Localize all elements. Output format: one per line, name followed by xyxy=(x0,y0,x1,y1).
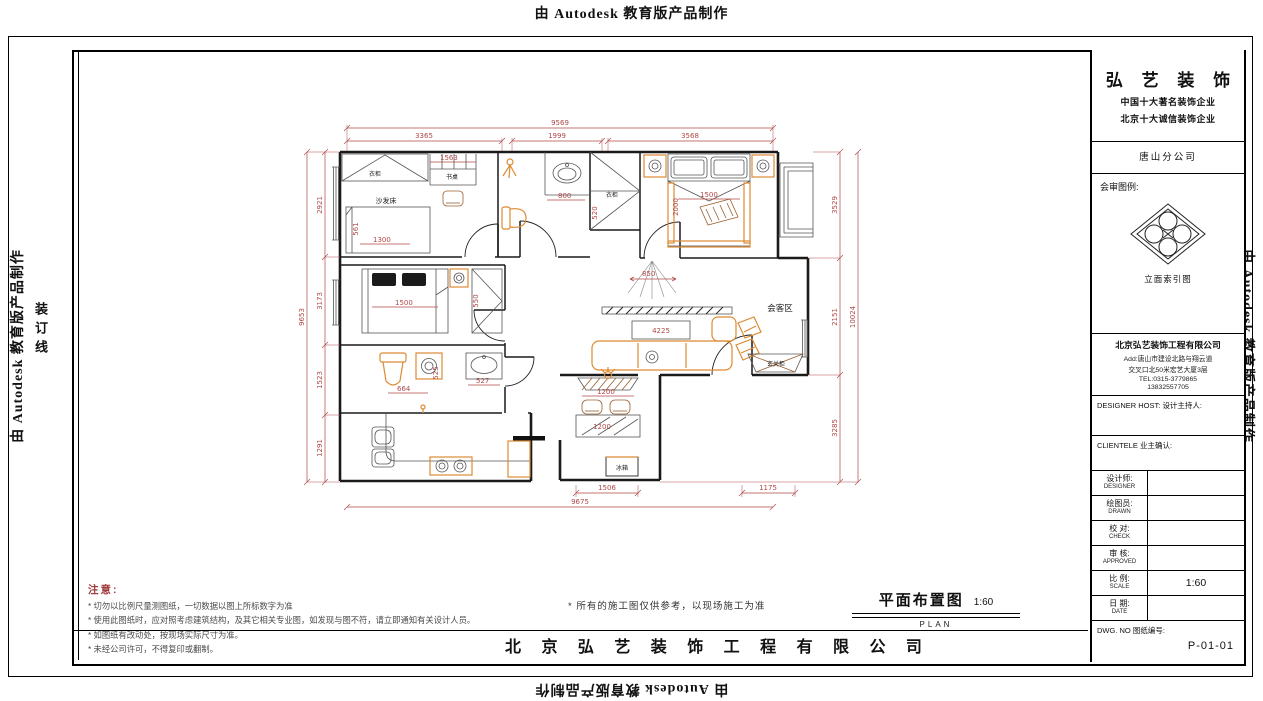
designer-host-cn: 设计主持人: xyxy=(1162,401,1202,410)
note-item: * 使用此图纸时，应对照考虑建筑结构，及其它相关专业图，如发现与图不符，请立即通… xyxy=(88,614,563,626)
row-label-cn: 绘图员: xyxy=(1092,498,1147,509)
company-name-footer: 北 京 弘 艺 装 饰 工 程 有 限 公 司 xyxy=(505,633,930,657)
company-address-1: Add:唐山市建设北路与翔云道 xyxy=(1092,353,1244,363)
cabinet-dim: 1200 xyxy=(597,388,615,396)
note-item: * 未经公司许可，不得复印或翻制。 xyxy=(88,643,563,655)
toilet1-icon xyxy=(502,207,526,229)
company-address-2: 交叉口北50米宏艺大厦3层 xyxy=(1092,364,1244,374)
dim-top-total: 9569 xyxy=(551,119,569,127)
designer-host-en: DESIGNER HOST: xyxy=(1097,401,1160,410)
wardrobe1-label: 衣柜 xyxy=(369,170,381,178)
row-value xyxy=(1148,546,1244,570)
dim-right-2: 2151 xyxy=(831,308,839,326)
dwg-number-section: DWG. NO 图纸编号: P-01-01 xyxy=(1092,621,1244,662)
dwg-number-label: DWG. NO 图纸编号: xyxy=(1097,625,1244,636)
row-value xyxy=(1148,496,1244,520)
desk-dim: 1563 xyxy=(440,154,458,162)
frame-inner-line xyxy=(78,52,79,660)
fridge-icon xyxy=(508,441,530,477)
room-study: 衣柜 1563 书桌 沙发床 1300 561 xyxy=(342,154,476,253)
row-label-cn: 设计师: xyxy=(1092,473,1147,484)
dwg-number: P-01-01 xyxy=(1092,640,1234,652)
dim-left-2: 3173 xyxy=(316,292,324,310)
row-label-en: DATE xyxy=(1092,609,1147,615)
company-mobile: 13832557705 xyxy=(1092,384,1244,391)
dim-bottom-2: 1175 xyxy=(759,484,777,492)
grid-row-drawn: 绘图员:DRAWN xyxy=(1092,496,1244,521)
room-bathroom2: 527 664 525 xyxy=(380,353,502,413)
dim-left-total: 9653 xyxy=(298,308,306,326)
drawing-scale: 1:60 xyxy=(974,597,993,608)
room-bedroom2: 1500 550 xyxy=(362,269,502,333)
living-area-label: 会客区 xyxy=(767,303,793,313)
row-label-cn: 比 例: xyxy=(1092,573,1147,584)
bath2-dim: 664 xyxy=(397,385,411,393)
hall-opening-dim: 850 xyxy=(642,270,655,278)
pillow xyxy=(372,273,396,286)
grid-row-approved: 审 核:APPROVED xyxy=(1092,546,1244,571)
company-full-name: 北京弘艺装饰工程有限公司 xyxy=(1092,338,1244,351)
room-living: 4225 会客区 玄关柜 850 xyxy=(592,270,803,372)
logo-caption: 立面索引图 xyxy=(1092,273,1244,285)
row-label-cn: 校 对: xyxy=(1092,523,1147,534)
door-leaf-bar xyxy=(513,436,545,441)
row-value xyxy=(1148,521,1244,545)
stove-icon xyxy=(430,457,472,475)
row-label-en: DESIGNER xyxy=(1092,484,1147,490)
legend-label: 会审图例: xyxy=(1100,180,1244,193)
floor-plan-drawing: 衣柜 1563 书桌 沙发床 1300 561 800 衣柜 520 xyxy=(280,95,880,515)
row-label-cn: 审 核: xyxy=(1092,548,1147,559)
plant-icon xyxy=(601,367,615,379)
row-label-en: CHECK xyxy=(1092,534,1147,540)
shower-icon xyxy=(503,159,516,178)
wardrobe2-dim: 520 xyxy=(591,206,599,219)
dim-left-1: 2921 xyxy=(316,196,324,214)
master-bed-length-dim: 2000 xyxy=(672,198,680,216)
company-tel: TEL:0315-3779865 xyxy=(1092,376,1244,383)
row-value xyxy=(1148,471,1244,495)
designer-host-row: DESIGNER HOST: 设计主持人: xyxy=(1092,396,1244,436)
faucet-icon xyxy=(421,405,425,413)
bed1-width-dim: 1300 xyxy=(373,236,391,244)
doors xyxy=(465,221,752,441)
desk-label: 书桌 xyxy=(446,173,458,181)
grid-row-date: 日 期:DATE xyxy=(1092,596,1244,621)
bed1-height-dim: 561 xyxy=(352,222,360,235)
pillow xyxy=(402,273,426,286)
autodesk-watermark-top: 由 Autodesk 教育版产品制作 xyxy=(0,3,1263,23)
sofa-bed-label: 沙发床 xyxy=(376,196,397,205)
master-bed-width-dim: 1500 xyxy=(700,191,718,199)
walls xyxy=(340,152,808,481)
autodesk-watermark-bottom: 由 Autodesk 教育版产品制作 xyxy=(0,680,1263,700)
title-block: 弘 艺 装 饰 中国十大著名装饰企业 北京十大诚信装饰企业 唐山分公司 会审图例… xyxy=(1090,50,1244,662)
room-bathroom1: 800 xyxy=(502,152,590,229)
row-label-en: APPROVED xyxy=(1092,559,1147,565)
room-kitchen xyxy=(372,413,531,477)
dim-top-1: 3365 xyxy=(415,132,433,140)
grid-row-scale: 比 例:SCALE 1:60 xyxy=(1092,571,1244,596)
scale-value: 1:60 xyxy=(1148,571,1244,595)
notes-title: 注意: xyxy=(88,582,563,597)
entry-cabinet-label: 玄关柜 xyxy=(767,360,785,368)
drawing-title: 平面布置图 xyxy=(879,589,964,610)
bath1-sink-dim: 800 xyxy=(558,192,571,200)
dim-right-1: 3529 xyxy=(831,196,839,214)
brand-name: 弘 艺 装 饰 xyxy=(1092,66,1244,91)
bed2-dim: 1500 xyxy=(395,299,413,307)
room-dining: 1200 1200 冰箱 xyxy=(576,367,640,476)
row-value xyxy=(1148,596,1244,621)
company-info-section: 北京弘艺装饰工程有限公司 Add:唐山市建设北路与翔云道 交叉口北50米宏艺大厦… xyxy=(1092,334,1244,396)
bath2-depth-dim: 525 xyxy=(432,366,440,379)
wardrobe2-label: 衣柜 xyxy=(606,191,618,199)
note-item: * 如图纸有改动处，按现场实际尺寸为准。 xyxy=(88,629,563,641)
brand-slogan-1: 中国十大著名装饰企业 xyxy=(1092,95,1244,108)
wardrobe3-dim: 550 xyxy=(472,294,480,307)
client-cn: 业主确认: xyxy=(1140,441,1172,450)
grid-row-check: 校 对:CHECK xyxy=(1092,521,1244,546)
row-label-cn: 日 期: xyxy=(1092,598,1147,609)
note-item: * 切勿以比例尺量测图纸，一切数据以图上所标数字为准 xyxy=(88,600,563,612)
brand-slogan-2: 北京十大诚信装饰企业 xyxy=(1092,112,1244,125)
toilet2-icon xyxy=(380,353,406,385)
title-underline xyxy=(852,613,1020,618)
dim-bottom-1: 1506 xyxy=(598,484,616,492)
client-en: CLIENTELE xyxy=(1097,441,1138,450)
branch-name: 唐山分公司 xyxy=(1092,142,1244,174)
dim-top-3: 3568 xyxy=(681,132,699,140)
reference-note: * 所有的施工图仅供参考，以现场施工为准 xyxy=(568,598,765,612)
bath2-sink-dim: 527 xyxy=(476,377,489,385)
row-label-en: DRAWN xyxy=(1092,509,1147,515)
room-master-bedroom: 1500 2000 xyxy=(644,154,774,247)
dim-left-4: 1291 xyxy=(316,439,324,457)
company-logo-icon xyxy=(1130,203,1206,265)
dim-right-3: 3285 xyxy=(831,419,839,437)
brand-section: 弘 艺 装 饰 中国十大著名装饰企业 北京十大诚信装饰企业 xyxy=(1092,50,1244,142)
notes-block: 注意: * 切勿以比例尺量测图纸，一切数据以图上所标数字为准 * 使用此图纸时，… xyxy=(88,582,563,655)
dim-right-total: 10024 xyxy=(849,305,857,328)
wardrobe-column: 衣柜 520 xyxy=(590,152,640,230)
table-dim: 1200 xyxy=(593,423,611,431)
dim-left-3: 1523 xyxy=(316,371,324,389)
drawing-title-block: 平面布置图 1:60 PLAN xyxy=(852,589,1020,629)
client-confirm-row: CLIENTELE 业主确认: xyxy=(1092,436,1244,471)
logo-section: 会审图例: 立面索引图 xyxy=(1092,174,1244,334)
grid-row-designer: 设计师:DESIGNER xyxy=(1092,471,1244,496)
dim-bottom-total: 9675 xyxy=(571,498,589,506)
row-label-en: SCALE xyxy=(1092,584,1147,590)
sofa-dim: 4225 xyxy=(652,327,670,335)
fridge-label: 冰箱 xyxy=(616,464,628,472)
drawing-title-en: PLAN xyxy=(852,620,1020,629)
signature-grid: 设计师:DESIGNER 绘图员:DRAWN 校 对:CHECK 审 核:APP… xyxy=(1092,471,1244,621)
dim-top-2: 1999 xyxy=(548,132,566,140)
